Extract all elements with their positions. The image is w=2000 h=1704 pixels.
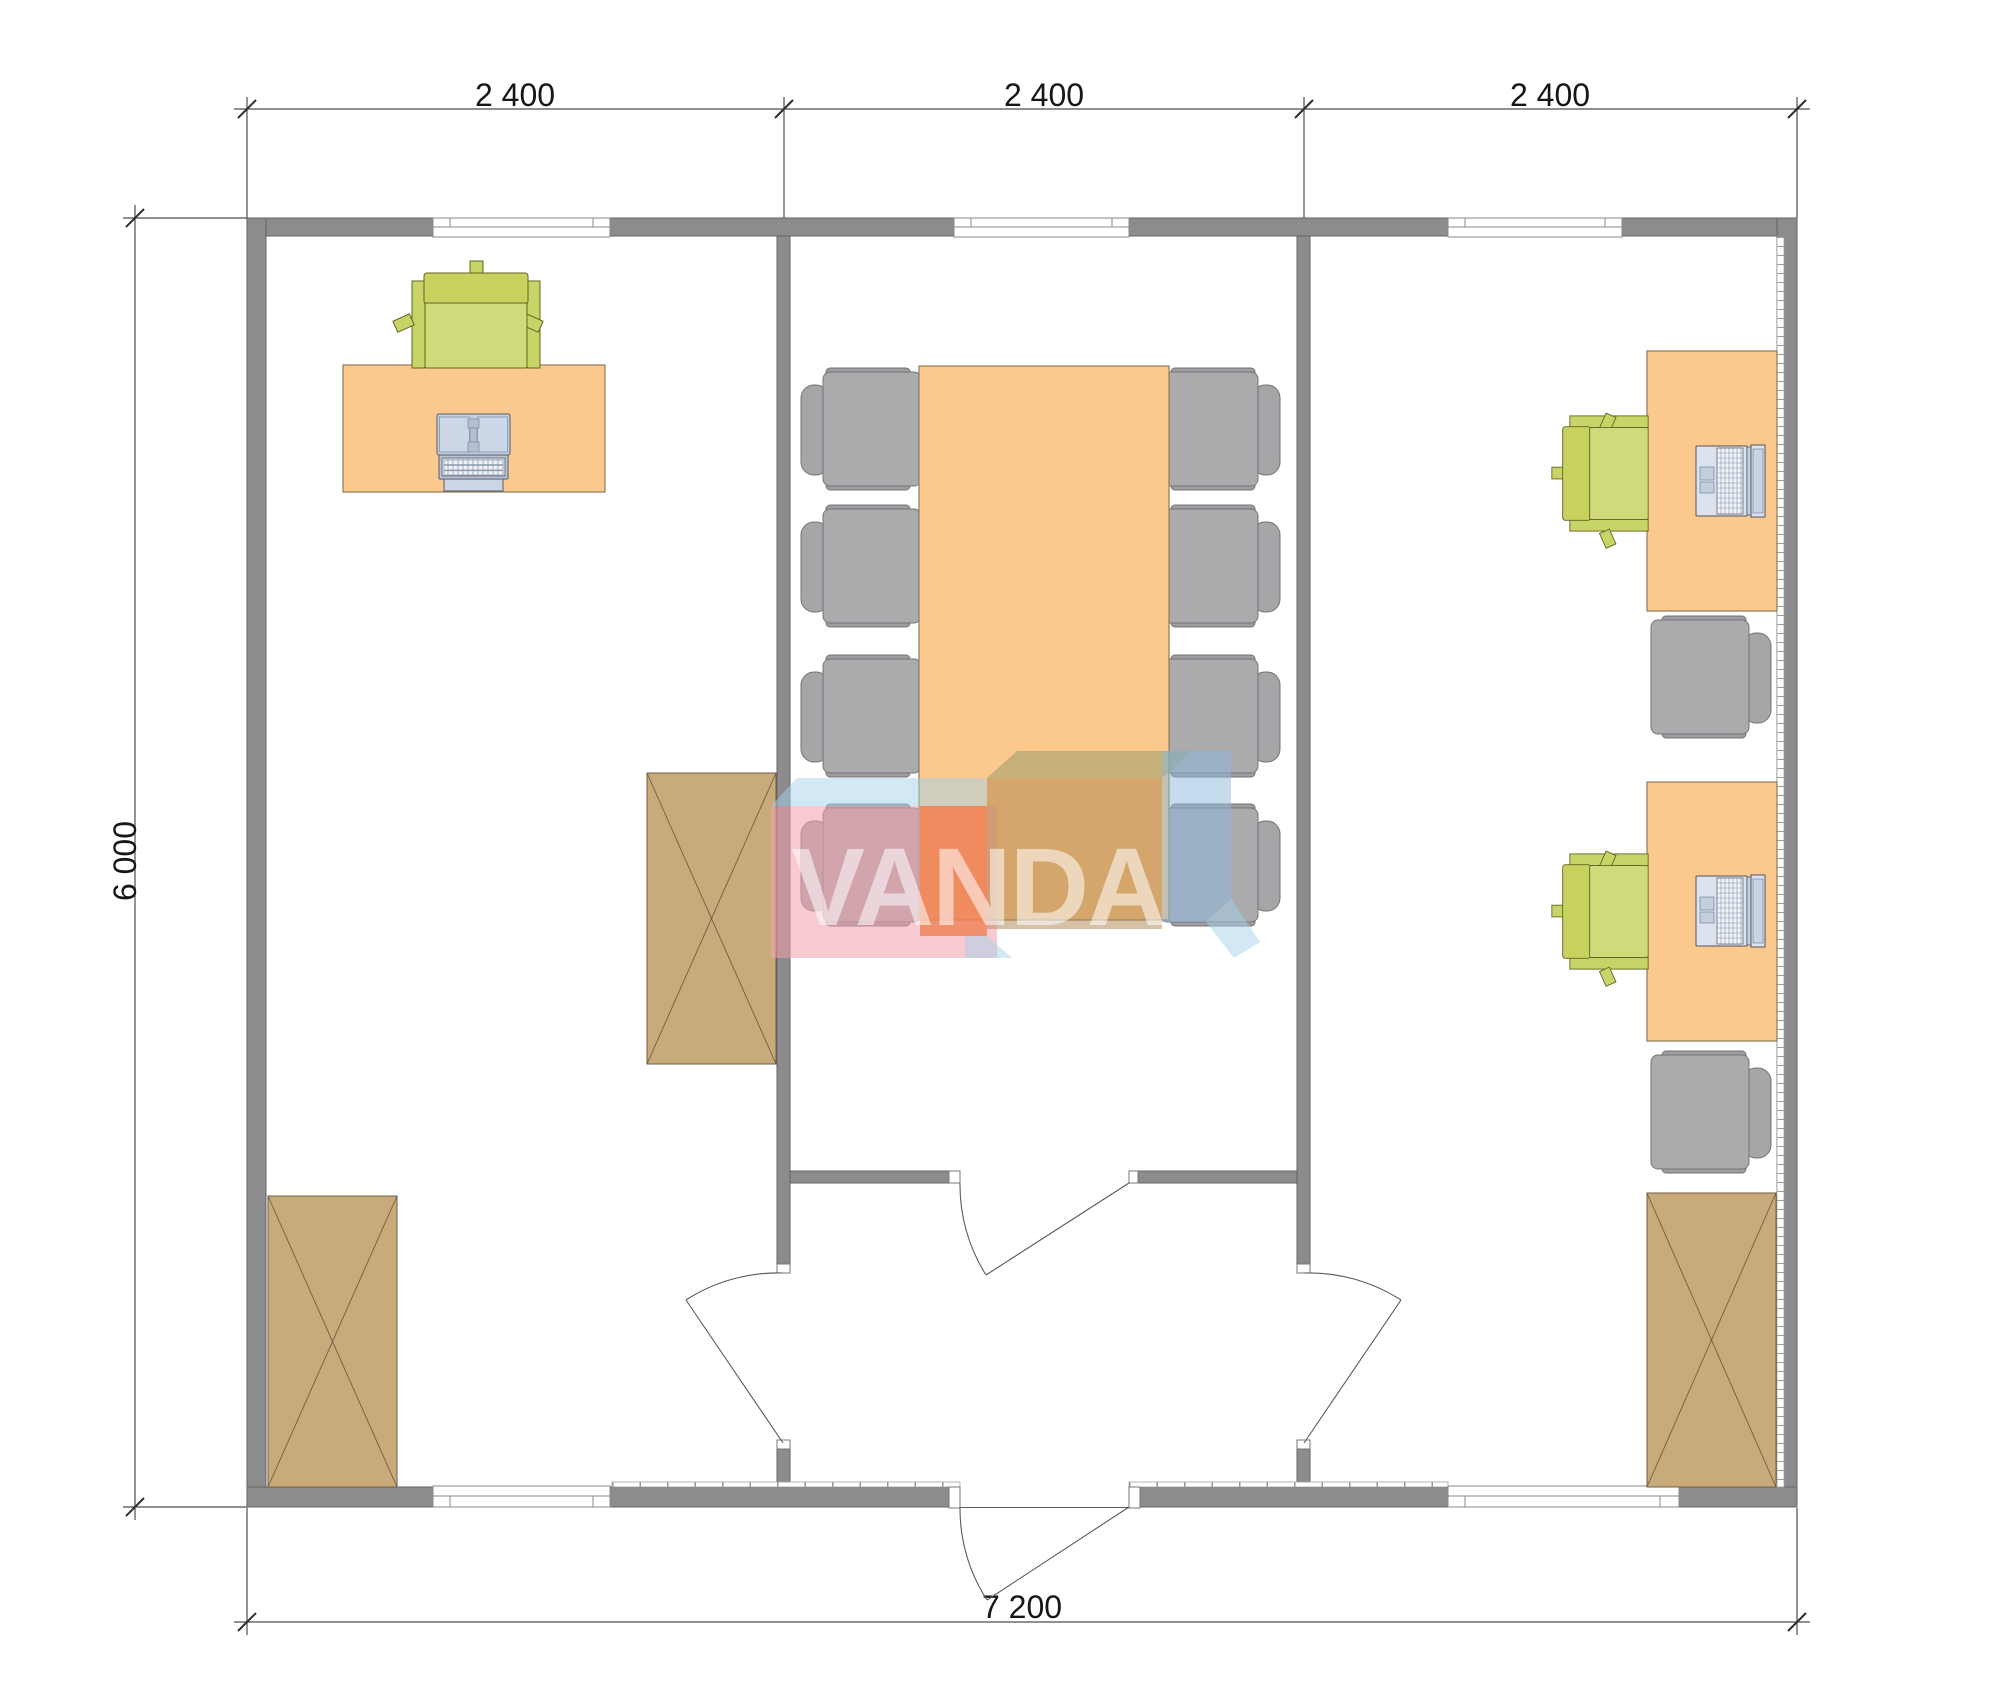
svg-text:VANDA: VANDA (792, 826, 1165, 949)
svg-text:7 200: 7 200 (982, 1589, 1062, 1625)
svg-text:2 400: 2 400 (475, 77, 555, 113)
svg-text:2 400: 2 400 (1510, 77, 1590, 113)
svg-text:6 000: 6 000 (107, 821, 143, 901)
svg-text:2 400: 2 400 (1004, 77, 1084, 113)
